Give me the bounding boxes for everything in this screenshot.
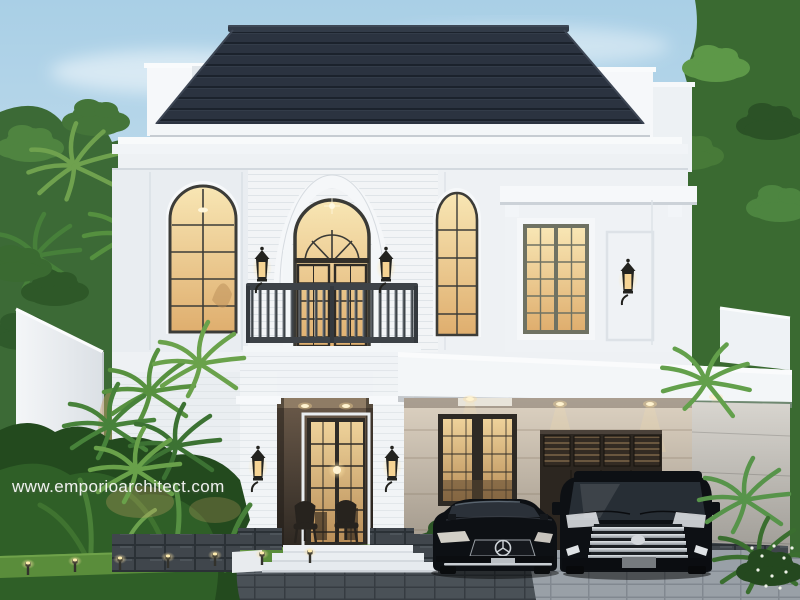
interior-ceiling-light [198,208,208,213]
flower [750,546,753,549]
hip-roof [150,25,650,138]
headlight [437,531,470,543]
downlight [339,403,353,410]
arched-window-left [166,181,240,334]
flower [778,586,781,589]
warm-glow [189,497,241,523]
roof-fascia [150,124,650,135]
flower [756,568,759,571]
entrance-porch [277,398,373,548]
flower [772,544,775,547]
grille-bar [589,548,687,552]
flower [790,546,793,549]
cornice-frieze [118,154,682,168]
right-tower-coping [594,67,656,72]
mpv-car [552,471,720,574]
corbel [505,205,519,217]
transom-bar [295,258,369,263]
interior-shadow [443,480,512,501]
house-scene [0,0,800,600]
railing-post [246,286,250,343]
pendant-light [333,466,341,474]
flower [770,574,773,577]
roof-ribs [156,30,644,124]
garage-door-top [540,430,662,434]
chrome-lip [444,563,552,566]
porch-side-shadow [277,398,284,548]
bay-cornice [500,186,697,202]
porch-ceiling [277,398,373,408]
bay-cornice-shadow [500,202,697,205]
wheel [566,566,584,574]
grille-bar [592,527,684,531]
side-mirror [448,514,456,520]
cornice-band [112,144,688,154]
cornice [112,137,688,171]
side-mirror [540,514,548,520]
arched-window-right [433,188,481,337]
watermark: www.emporioarchitect.com [12,477,225,497]
architectural-render: www.emporioarchitect.com [0,0,800,600]
column-base [238,528,282,550]
railing-post [414,286,418,343]
wheel [688,566,706,574]
cornice-band [118,137,682,144]
step-edge [262,570,438,573]
railing-post [330,286,334,343]
flower [760,554,763,557]
license-plate [622,557,656,568]
downlight [298,403,312,410]
downlight [463,396,477,403]
right-bay [500,186,697,366]
vent-panel [634,436,660,466]
right-upper-coping [650,82,695,87]
downlight [643,401,657,408]
brand-emblem [631,535,645,545]
column-cap [236,396,281,404]
wheel [534,566,550,574]
sedan-car [433,499,557,574]
corbel [668,205,682,217]
wheel [440,566,456,574]
flower [782,556,785,559]
vent-panel [604,436,630,466]
carport-window [438,414,517,506]
vent-panel [544,436,570,466]
downlight [553,401,567,408]
flower [764,584,767,587]
flower [784,570,787,573]
vent-panel [574,436,600,466]
side-mirror [552,502,561,515]
